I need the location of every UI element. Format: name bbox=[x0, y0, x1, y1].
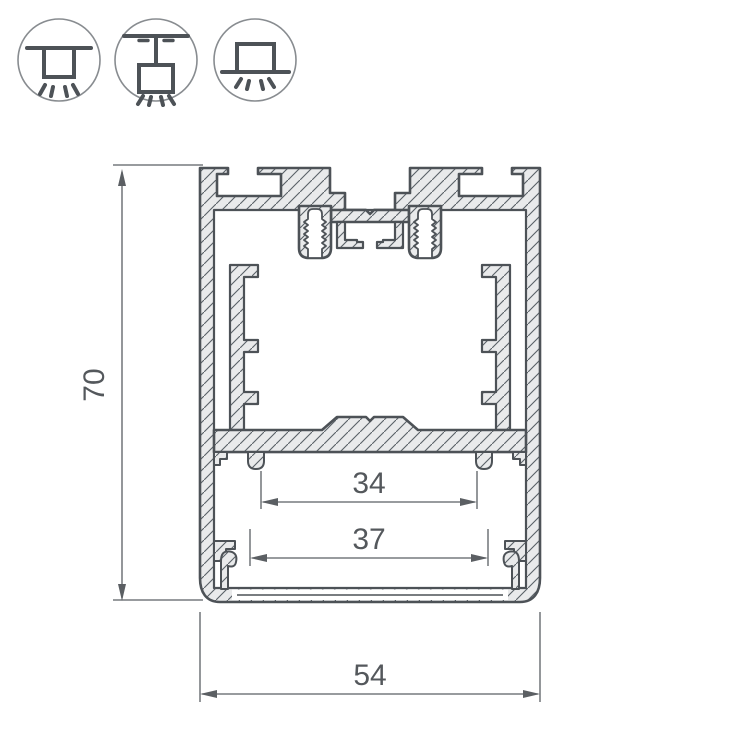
screw-slot-left bbox=[304, 209, 326, 258]
plate-foot-left bbox=[248, 452, 264, 469]
fixture-box bbox=[237, 44, 274, 72]
suspended-mount-icon bbox=[115, 19, 197, 105]
ceiling-mount-icon bbox=[18, 19, 100, 101]
profile-technical-drawing: 70 34 37 54 bbox=[0, 0, 750, 750]
light-rays bbox=[236, 79, 274, 89]
icon-circle bbox=[214, 19, 296, 101]
fixture-box bbox=[44, 48, 74, 77]
plate-foot-right bbox=[476, 452, 492, 469]
arrowhead-right bbox=[523, 690, 540, 698]
dimension-54: 54 bbox=[200, 612, 540, 702]
main-cavity bbox=[214, 210, 526, 440]
fixture-box bbox=[139, 65, 173, 92]
icon-circle bbox=[18, 19, 100, 101]
arrowhead-up bbox=[118, 169, 126, 186]
light-rays bbox=[40, 85, 78, 96]
dimension-70: 70 bbox=[78, 165, 203, 601]
mount-icons bbox=[18, 19, 296, 105]
dimension-label-37: 37 bbox=[352, 523, 385, 556]
dimension-label-54: 54 bbox=[353, 659, 386, 692]
dimension-label-70: 70 bbox=[78, 368, 111, 401]
technical-drawing-page: 70 34 37 54 bbox=[0, 0, 750, 750]
surface-mount-icon bbox=[214, 19, 296, 101]
screw-slot-right bbox=[414, 209, 436, 258]
arrowhead-left bbox=[200, 690, 217, 698]
dimension-label-34: 34 bbox=[352, 467, 385, 500]
arrowhead-down bbox=[118, 584, 126, 601]
